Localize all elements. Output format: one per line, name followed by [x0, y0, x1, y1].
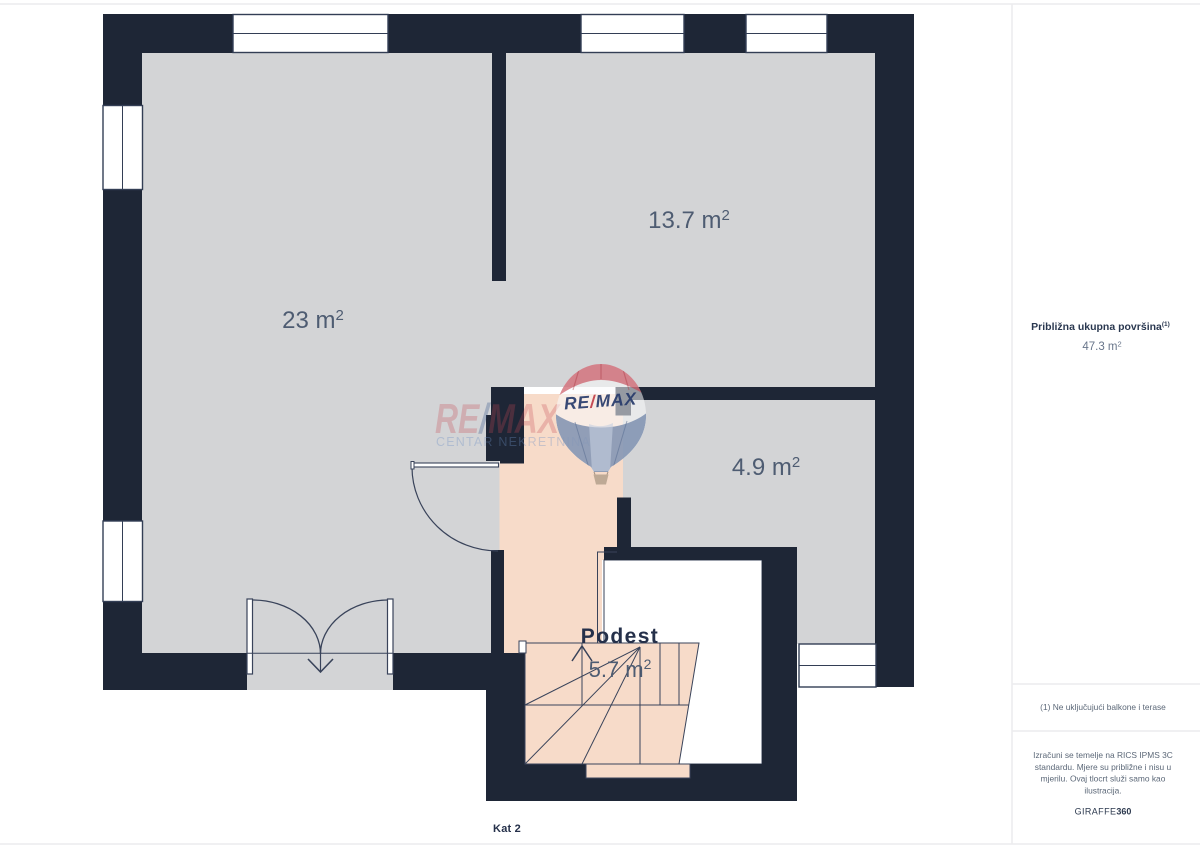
svg-text:standardu. Mjere su približne: standardu. Mjere su približne i nisu u	[1035, 762, 1172, 772]
svg-text:Podest: Podest	[581, 625, 659, 648]
svg-text:23 m2: 23 m2	[282, 307, 344, 334]
svg-text:13.7 m2: 13.7 m2	[648, 207, 730, 234]
svg-text:5.7 m2: 5.7 m2	[589, 656, 652, 682]
svg-text:ilustracija.: ilustracija.	[1084, 785, 1121, 795]
svg-text:(1) Ne uključujući balkone i t: (1) Ne uključujući balkone i terase	[1040, 702, 1166, 712]
svg-text:Kat 2: Kat 2	[493, 823, 521, 835]
svg-text:47.3 m2: 47.3 m2	[1082, 340, 1121, 354]
svg-text:Izračuni se temelje na RICS IP: Izračuni se temelje na RICS IPMS 3C	[1033, 750, 1173, 760]
svg-text:Približna ukupna površina(1): Približna ukupna površina(1)	[1031, 321, 1170, 333]
svg-text:mjerilu. Ovaj tlocrt služi sam: mjerilu. Ovaj tlocrt služi samo kao	[1041, 774, 1166, 784]
svg-text:GIRAFFE360: GIRAFFE360	[1075, 807, 1132, 817]
svg-text:4.9 m2: 4.9 m2	[732, 454, 800, 481]
